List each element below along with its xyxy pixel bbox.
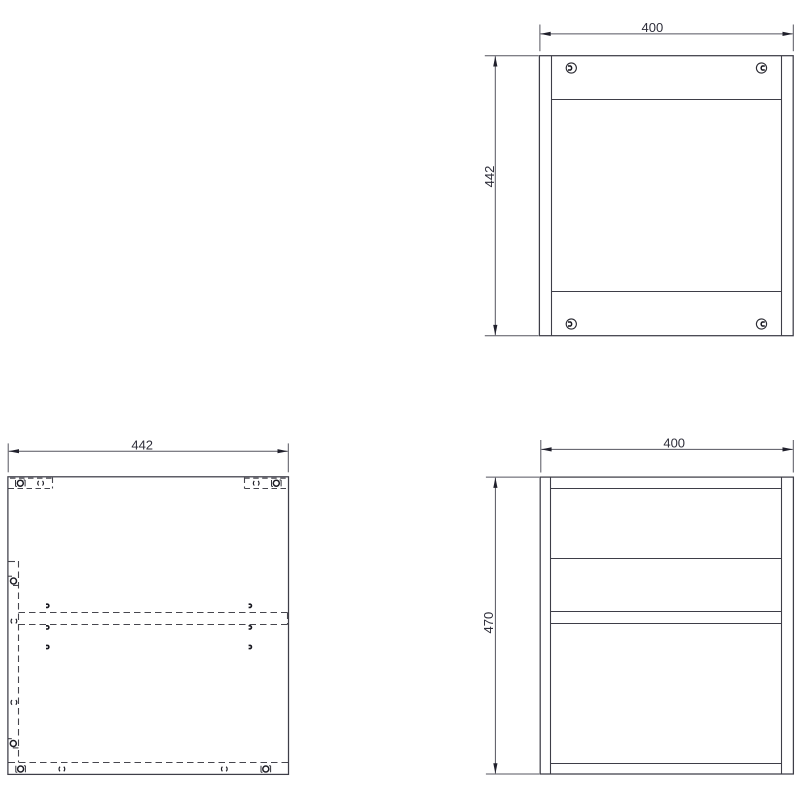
svg-text:442: 442	[482, 166, 497, 188]
svg-text:442: 442	[131, 438, 153, 453]
svg-text:400: 400	[663, 436, 685, 451]
svg-text:470: 470	[481, 612, 496, 634]
svg-text:400: 400	[642, 20, 664, 35]
